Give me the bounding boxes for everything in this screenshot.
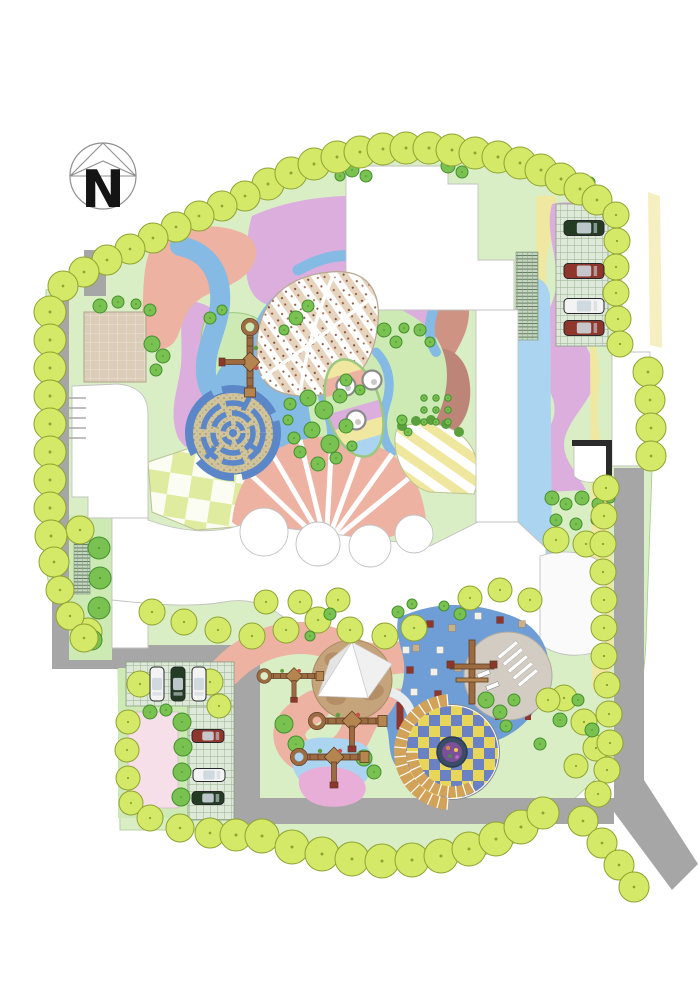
shrub-tree-center (149, 309, 151, 311)
lawn-tree-center (583, 721, 585, 723)
shrub-tree-center (373, 771, 375, 773)
mosaic-tile (431, 669, 438, 676)
lawn-tree-center (285, 629, 287, 631)
building-scallop-1 (240, 508, 288, 556)
boundary-tree-center (106, 259, 109, 262)
lawn-tree-center (413, 627, 415, 629)
shrub-tree-center (411, 603, 413, 605)
shrub-tree-center (403, 327, 405, 329)
lawn-tree-center (337, 599, 339, 601)
shrub-tree-center (307, 397, 309, 399)
lawn-tree-center (384, 635, 386, 637)
boundary-tree-center (519, 162, 522, 165)
shrub-tree-center (155, 369, 157, 371)
lawn-tree-center (349, 629, 351, 631)
boundary-tree-center (127, 777, 129, 779)
boundary-tree-center (49, 451, 52, 454)
boundary-tree-center (540, 169, 543, 172)
lawn-tree-center (251, 635, 253, 637)
shrub-tree-center (351, 445, 353, 447)
boundary-tree-center (633, 886, 636, 889)
boundary-tree-center (405, 147, 408, 150)
shrub-tree-center (221, 309, 223, 311)
boundary-tree-center (290, 172, 293, 175)
shrub-tree-center (407, 431, 409, 433)
parked-car (192, 792, 224, 805)
shrub-tree-center (459, 613, 461, 615)
shrub-tree-center (295, 317, 297, 319)
boundary-tree-center (53, 561, 56, 564)
boundary-tree-center (615, 292, 617, 294)
boundary-tree-center (244, 195, 247, 198)
shrub-tree-center (581, 497, 583, 499)
boundary-tree-center (49, 507, 52, 510)
lawn-tree-center (317, 619, 319, 621)
boundary-tree-center (382, 148, 385, 151)
mosaic-tile (403, 647, 410, 654)
shrub-tree-center (447, 397, 449, 399)
parked-car (564, 321, 604, 336)
shrub-tree-center (307, 305, 309, 307)
parked-car (564, 221, 604, 236)
mosaic-tile (519, 621, 526, 628)
boundary-tree-center (519, 825, 522, 828)
site-plan-drawing: N (0, 0, 699, 989)
boundary-tree-center (336, 156, 339, 159)
shrub-tree-center (151, 343, 153, 345)
boundary-tree-center (596, 199, 599, 202)
lawn-tree-center (563, 697, 565, 699)
boundary-tree-center (139, 683, 141, 685)
lawn-tree-center (151, 611, 153, 613)
site-plan-canvas: N (0, 0, 699, 989)
parked-car (192, 730, 224, 743)
boundary-tree-center (209, 681, 211, 683)
boundary-tree-center (602, 543, 604, 545)
parked-car (193, 769, 225, 782)
boundary-tree-center (603, 655, 605, 657)
boundary-tree-center (603, 515, 605, 517)
building-scallop-4 (395, 515, 433, 553)
boundary-tree-center (380, 859, 383, 862)
boundary-tree-center (467, 847, 470, 850)
shrub-tree-center (149, 711, 151, 713)
shrub-tree-center (423, 397, 425, 399)
shrub-tree-center (283, 723, 285, 725)
boundary-tree-center (609, 742, 611, 744)
shrub-tree-center (513, 699, 515, 701)
boundary-tree-center (410, 858, 413, 861)
shrub-tree-center (429, 341, 431, 343)
mosaic-tile (427, 621, 434, 628)
lawn-tree-center (499, 589, 501, 591)
shrub-tree-center (117, 301, 119, 303)
shrub-tree-center (329, 613, 331, 615)
boundary-tree-center (618, 864, 621, 867)
boundary-tree-center (49, 423, 52, 426)
boundary-tree-center (83, 637, 86, 640)
shrub-tree-center (335, 457, 337, 459)
mosaic-tile (475, 613, 482, 620)
shrub-tree-center (395, 341, 397, 343)
lawn-tree-center (183, 621, 185, 623)
boundary-tree-center (616, 240, 618, 242)
shrub-tree-center (555, 519, 557, 521)
boundary-tree-center (129, 248, 132, 251)
boundary-tree-center (221, 205, 224, 208)
boundary-tree-center (582, 820, 585, 823)
parked-car (150, 667, 164, 701)
shrub-tree-center (99, 577, 101, 579)
boundary-tree-center (50, 535, 53, 538)
shrub-tree-center (359, 389, 361, 391)
boundary-tree-center (474, 152, 477, 155)
shrub-tree-center (317, 463, 319, 465)
mosaic-tile (413, 645, 420, 652)
boundary-tree-center (320, 852, 323, 855)
shrub-tree-center (423, 421, 425, 423)
parked-car (171, 667, 185, 701)
shrub-tree-center (419, 329, 421, 331)
parked-car (564, 264, 604, 279)
boundary-tree-center (603, 627, 605, 629)
boundary-tree-center (260, 834, 263, 837)
boundary-tree-center (290, 845, 293, 848)
boundary-tree-center (59, 589, 62, 592)
shrub-tree-center (311, 429, 313, 431)
boundary-tree-center (149, 817, 151, 819)
shrub-tree-center (339, 395, 341, 397)
lawn-tree-center (265, 601, 267, 603)
boundary-tree-center (649, 399, 652, 402)
boundary-tree-center (615, 266, 617, 268)
boundary-tree-center (597, 793, 599, 795)
shrub-tree-center (435, 397, 437, 399)
boundary-tree-center (439, 854, 442, 857)
boundary-tree-center (127, 721, 129, 723)
shrub-tree-center (287, 419, 289, 421)
building-scallop-3 (349, 525, 391, 567)
lawn-tree-center (79, 529, 82, 532)
shrub-tree-center (401, 419, 403, 421)
boundary-tree-center (218, 705, 220, 707)
boundary-tree-center (198, 215, 201, 218)
boundary-tree-center (49, 395, 52, 398)
boundary-tree-center (603, 599, 605, 601)
boundary-tree-center (130, 802, 132, 804)
shrub-tree-center (499, 711, 501, 713)
boundary-tree-center (606, 769, 608, 771)
boundary-tree-center (602, 571, 604, 573)
boundary-tree-center (650, 455, 653, 458)
boundary-tree-center (542, 812, 545, 815)
shrub-tree-center (565, 503, 567, 505)
boundary-tree-center (650, 427, 653, 430)
shrub-tree-center (365, 175, 367, 177)
boundary-tree-center (615, 214, 617, 216)
boundary-tree-center (359, 151, 362, 154)
boundary-tree-center (619, 343, 621, 345)
mosaic-tile (407, 667, 414, 674)
boundary-tree-center (601, 842, 604, 845)
shrub-tree-center (447, 409, 449, 411)
shrub-tree-center (181, 771, 183, 773)
shrub-tree-center (397, 611, 399, 613)
shrub-tree-center (447, 421, 449, 423)
boundary-tree-center (428, 147, 431, 150)
lawn-tree-center (217, 629, 219, 631)
shrub-tree-center (299, 451, 301, 453)
shrub-tree-center (98, 547, 100, 549)
shrub-tree-center (423, 409, 425, 411)
shrub-tree-center (99, 305, 101, 307)
boundary-tree-center (451, 149, 454, 152)
boundary-tree-center (83, 271, 86, 274)
boundary-tree-center (608, 713, 610, 715)
shrub-tree-center (351, 169, 353, 171)
boundary-tree-center (209, 832, 212, 835)
boundary-tree-center (313, 163, 316, 166)
shrub-tree-center (289, 403, 291, 405)
boundary-tree-center (647, 371, 650, 374)
lawn-tree-center (469, 597, 471, 599)
boundary-tree-center (605, 487, 607, 489)
shrub-tree-center (329, 443, 331, 445)
parked-car (564, 299, 604, 314)
shrub-tree-center (162, 355, 164, 357)
boundary-tree-center (497, 156, 500, 159)
shrub-tree-center (182, 746, 184, 748)
mosaic-tile (411, 689, 418, 696)
boundary-tree-center (579, 188, 582, 191)
compass: N (70, 143, 136, 220)
shrub-tree-center (209, 317, 211, 319)
shrub-tree-center (575, 523, 577, 525)
lawn-tree-center (299, 601, 301, 603)
shrub-tree-center (539, 743, 541, 745)
mosaic-tile (449, 625, 456, 632)
boundary-tree-center (175, 226, 178, 229)
lawn-tree-center (585, 543, 587, 545)
building-scallop-2 (296, 522, 340, 566)
shrub-tree-center (383, 329, 385, 331)
mosaic-tile (497, 617, 504, 624)
shrub-tree-center (309, 635, 311, 637)
shrub-tree-center (283, 329, 285, 331)
lawn-tree-center (595, 747, 597, 749)
shrub-tree-center (485, 699, 487, 701)
shrub-tree-center (165, 709, 167, 711)
boundary-tree-center (606, 684, 608, 686)
shrub-tree-center (295, 743, 297, 745)
lawn-tree-center (575, 765, 577, 767)
shrub-tree-center (551, 497, 553, 499)
boundary-tree-center (179, 827, 182, 830)
boundary-tree-center (62, 285, 65, 288)
lawn-tree-center (555, 539, 557, 541)
parked-car (192, 667, 206, 701)
boundary-tree-center (49, 479, 52, 482)
boundary-tree-center (494, 837, 497, 840)
shrub-tree-center (559, 719, 561, 721)
shrub-tree-center (135, 303, 137, 305)
compass-label: N (81, 160, 125, 220)
shrub-tree-center (505, 725, 507, 727)
pale-strip-northeast (648, 192, 662, 348)
maze-center (229, 429, 237, 437)
tan-paver-plaza (84, 312, 146, 382)
mosaic-tile (437, 647, 444, 654)
shrub-tree-center (345, 425, 347, 427)
shrub-tree-center (98, 607, 100, 609)
boundary-tree-center (49, 339, 52, 342)
shrub-tree-center (293, 437, 295, 439)
hatch-strip-east (516, 252, 538, 340)
shrub-tree-center (435, 421, 437, 423)
boundary-tree-center (152, 237, 155, 240)
shrub-tree-center (181, 721, 183, 723)
shrub-tree-center (461, 171, 463, 173)
lawn-tree-center (529, 599, 531, 601)
boundary-tree-center (267, 183, 270, 186)
circular-maze (189, 389, 277, 477)
shrub-tree-center (323, 409, 325, 411)
shrub-tree-center (443, 605, 445, 607)
boundary-tree-center (49, 311, 52, 314)
shrub-tree-center (345, 379, 347, 381)
boundary-tree-center (617, 318, 619, 320)
shrub-tree-center (180, 796, 182, 798)
shrub-tree-center (339, 175, 341, 177)
shrub-tree-center (577, 699, 579, 701)
building-east-wing (476, 310, 518, 522)
lawn-tree-center (547, 699, 549, 701)
boundary-tree-center (235, 834, 238, 837)
boundary-tree-center (69, 615, 72, 618)
planter-shrub (442, 742, 462, 762)
boundary-tree-center (126, 749, 128, 751)
boundary-tree-center (560, 178, 563, 181)
boundary-tree-center (49, 367, 52, 370)
boundary-tree-center (350, 857, 353, 860)
shrub-tree-center (591, 729, 593, 731)
shrub-tree-center (435, 409, 437, 411)
